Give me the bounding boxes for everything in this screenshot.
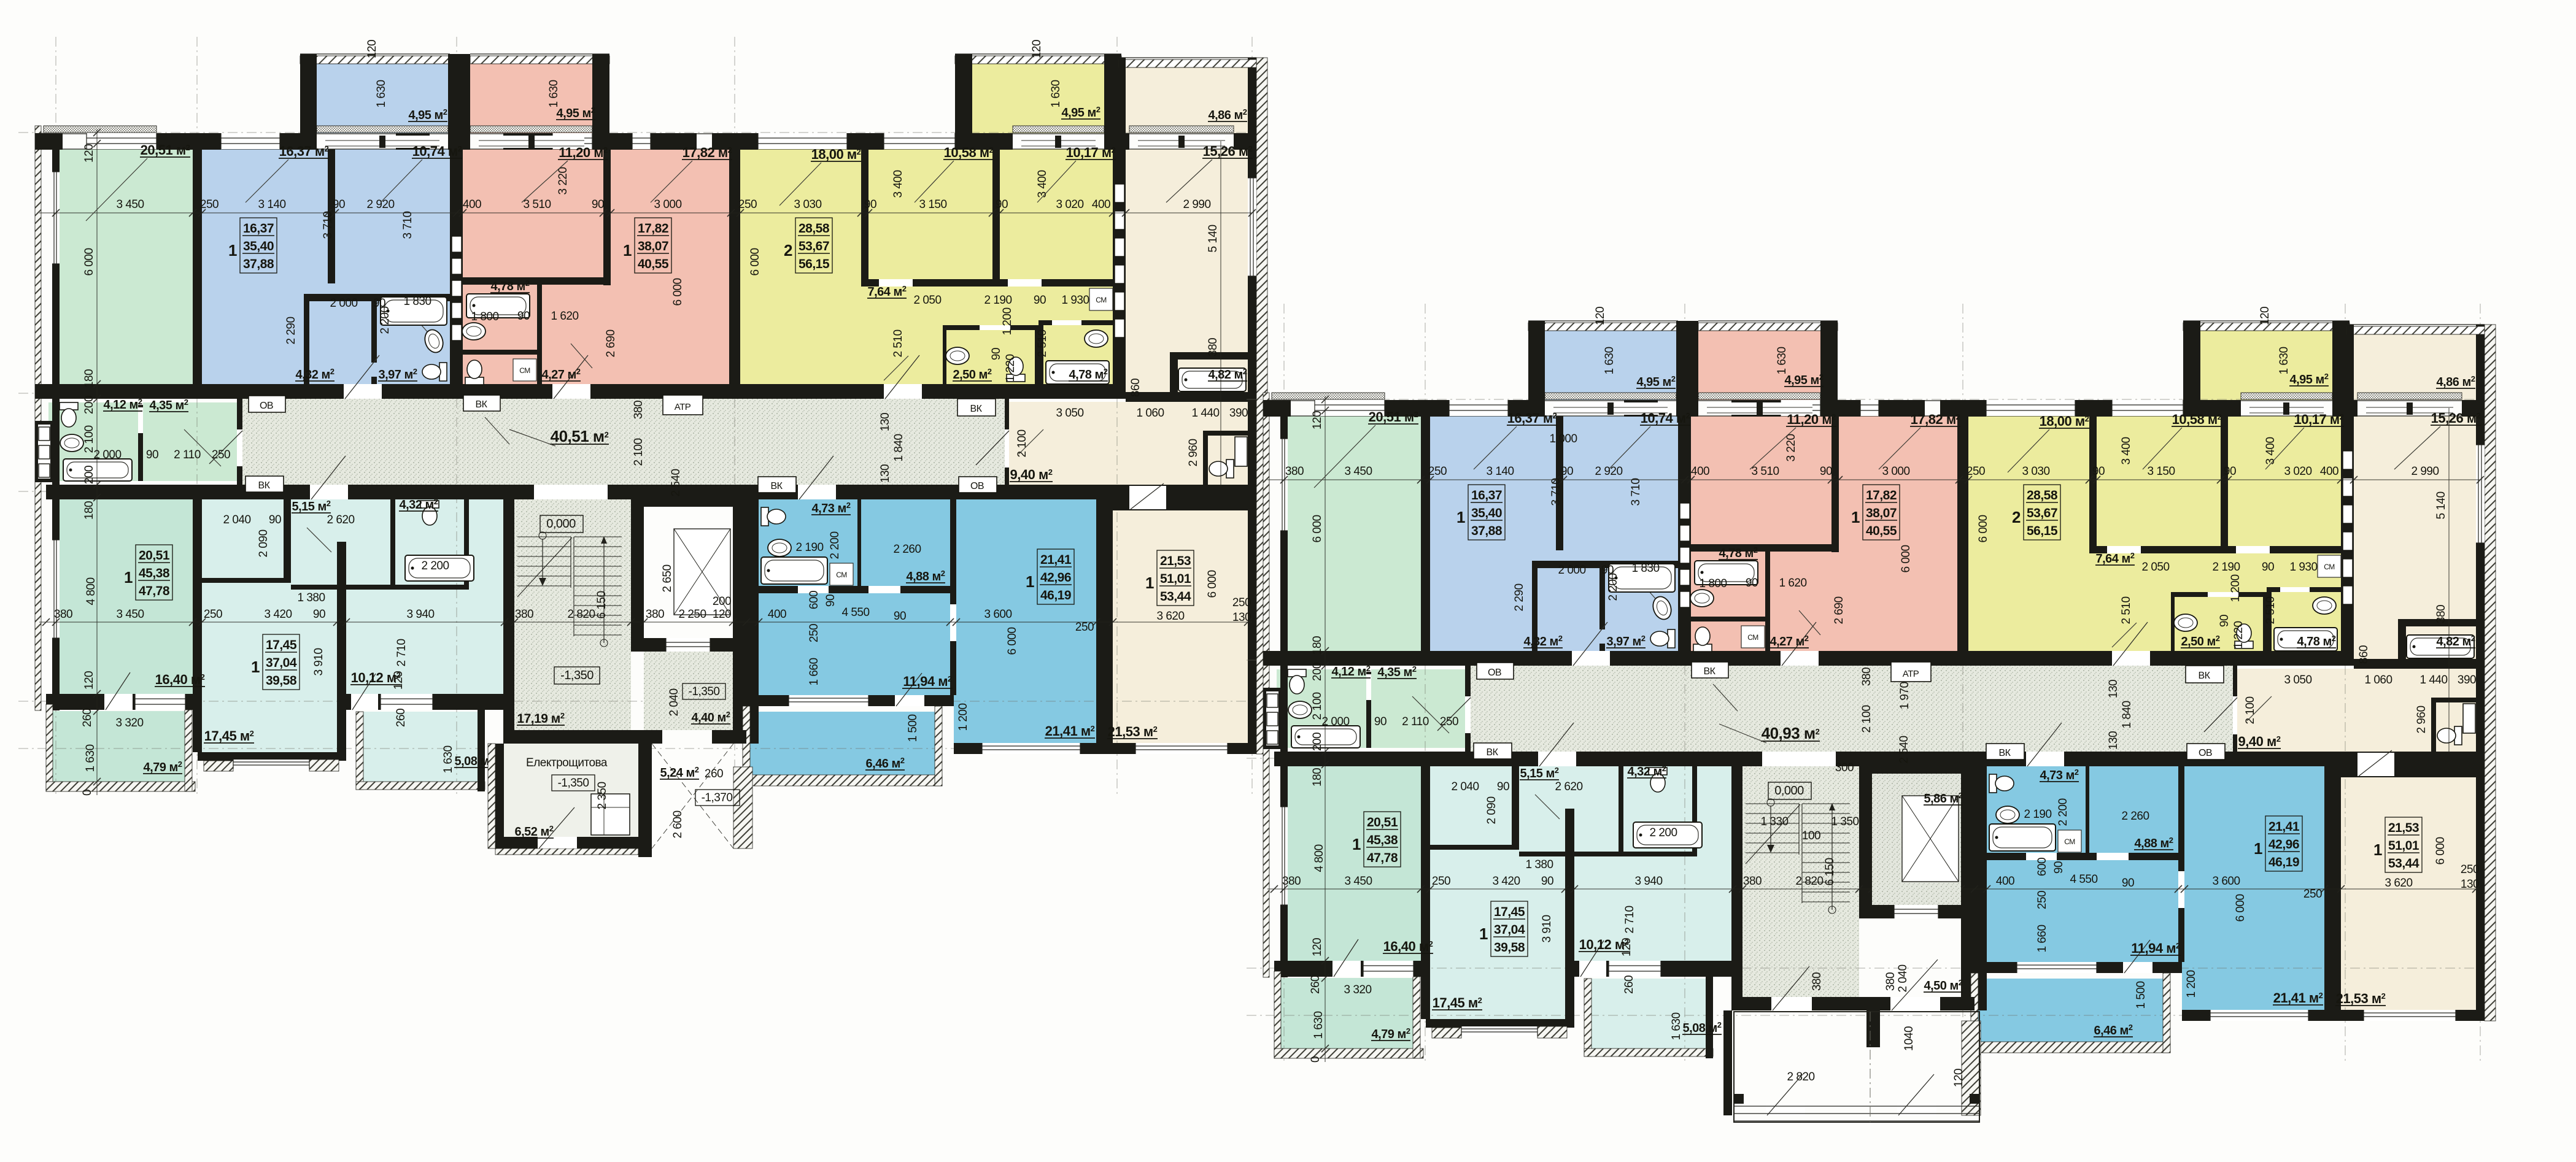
svg-text:3 450: 3 450 (116, 198, 144, 211)
svg-text:5,15 м2: 5,15 м2 (292, 499, 330, 514)
svg-text:3 000: 3 000 (1882, 465, 1909, 478)
svg-text:1 800: 1 800 (1699, 577, 1727, 590)
svg-text:1 060: 1 060 (1136, 407, 1164, 420)
svg-text:0,000: 0,000 (1774, 784, 1804, 798)
svg-text:40,55: 40,55 (638, 257, 669, 271)
svg-text:3 050: 3 050 (1056, 407, 1083, 420)
svg-text:1 840: 1 840 (892, 434, 905, 461)
svg-text:17,82 м2: 17,82 м2 (1911, 412, 1960, 427)
svg-text:2 100: 2 100 (1016, 429, 1029, 457)
svg-text:3 940: 3 940 (406, 608, 434, 621)
svg-text:3 710: 3 710 (322, 211, 335, 239)
svg-text:1 630: 1 630 (1670, 1012, 1683, 1040)
svg-text:2 260: 2 260 (2121, 810, 2149, 823)
svg-text:5 140: 5 140 (2435, 491, 2448, 519)
svg-text:ОВ: ОВ (1488, 668, 1501, 678)
svg-text:120: 120 (1311, 411, 1324, 429)
svg-text:3 510: 3 510 (523, 198, 551, 211)
svg-text:4,82 м2: 4,82 м2 (1208, 367, 1247, 382)
svg-text:4,95 м2: 4,95 м2 (1636, 374, 1675, 389)
svg-text:90: 90 (269, 514, 281, 526)
svg-text:ВК: ВК (2199, 671, 2211, 681)
svg-text:1 440: 1 440 (1191, 407, 1219, 420)
svg-text:3 050: 3 050 (2284, 674, 2311, 687)
svg-text:2 540: 2 540 (670, 469, 683, 496)
svg-text:1 830: 1 830 (1631, 562, 1659, 575)
svg-text:2 050: 2 050 (2141, 561, 2169, 574)
svg-text:2 040: 2 040 (1897, 964, 1909, 992)
svg-text:17,45: 17,45 (266, 638, 297, 652)
svg-text:3 140: 3 140 (258, 198, 285, 211)
svg-text:3 600: 3 600 (984, 608, 1011, 621)
svg-text:4,82 м2: 4,82 м2 (2436, 634, 2475, 648)
svg-text:2 090: 2 090 (1485, 796, 1498, 824)
svg-text:СМ: СМ (519, 366, 530, 375)
svg-text:2 040: 2 040 (223, 514, 250, 526)
svg-text:2 620: 2 620 (327, 514, 354, 526)
svg-text:90: 90 (2092, 465, 2105, 478)
svg-text:120: 120 (2259, 307, 2272, 325)
svg-text:250: 250 (1440, 715, 1458, 728)
svg-text:16,37 м2: 16,37 м2 (279, 144, 329, 159)
svg-text:6 000: 6 000 (1006, 627, 1019, 655)
svg-text:250: 250 (1428, 465, 1447, 478)
svg-text:130: 130 (2107, 680, 2120, 698)
svg-text:4,79 м2: 4,79 м2 (143, 760, 182, 774)
svg-text:1 200: 1 200 (2229, 574, 2242, 602)
svg-text:2 100: 2 100 (1311, 692, 1324, 720)
svg-text:7,64 м2: 7,64 м2 (2095, 551, 2134, 566)
svg-text:90: 90 (2122, 877, 2134, 890)
svg-text:2 820: 2 820 (567, 608, 595, 621)
svg-text:390: 390 (1229, 407, 1248, 420)
svg-text:380: 380 (1743, 875, 1762, 888)
svg-text:250: 250 (738, 198, 757, 211)
svg-text:38,07: 38,07 (638, 239, 668, 253)
svg-text:380: 380 (515, 608, 533, 621)
svg-text:400: 400 (1691, 465, 1709, 478)
svg-text:130: 130 (1232, 611, 1251, 624)
svg-text:5,08 м2: 5,08 м2 (454, 753, 493, 768)
svg-text:3 940: 3 940 (1634, 875, 1662, 888)
svg-text:1 660: 1 660 (808, 658, 821, 685)
svg-text:42,96: 42,96 (1040, 571, 1071, 585)
svg-text:2 260: 2 260 (893, 543, 921, 556)
svg-text:1 830: 1 830 (403, 295, 431, 308)
svg-text:37,04: 37,04 (1494, 923, 1525, 937)
svg-text:6 000: 6 000 (1311, 515, 1324, 542)
svg-text:21,53 м2: 21,53 м2 (2336, 991, 2386, 1006)
svg-text:5,24 м2: 5,24 м2 (660, 765, 698, 780)
svg-text:28,58: 28,58 (2027, 488, 2058, 502)
svg-text:10,74 м2: 10,74 м2 (412, 144, 462, 159)
svg-text:2 350: 2 350 (596, 782, 609, 809)
svg-text:11,20 м2: 11,20 м2 (559, 145, 608, 160)
svg-text:260: 260 (1623, 975, 1636, 994)
svg-text:120: 120 (1594, 307, 1607, 325)
svg-text:380: 380 (54, 608, 72, 621)
svg-text:3 710: 3 710 (1630, 478, 1642, 506)
svg-text:39,58: 39,58 (266, 674, 297, 688)
svg-text:1: 1 (1145, 574, 1154, 592)
svg-text:10,17 м2: 10,17 м2 (1066, 145, 1116, 160)
svg-text:120: 120 (1952, 1069, 1965, 1087)
svg-text:2 290: 2 290 (1513, 583, 1526, 611)
svg-text:400: 400 (768, 608, 786, 621)
svg-text:1 630: 1 630 (1312, 1011, 1325, 1039)
svg-text:380: 380 (1860, 668, 1873, 686)
svg-text:6,46 м2: 6,46 м2 (2094, 1023, 2132, 1037)
svg-text:35,40: 35,40 (1471, 506, 1502, 520)
svg-text:1 000: 1 000 (1549, 433, 1577, 445)
svg-text:3 620: 3 620 (2385, 877, 2412, 890)
svg-text:4,95 м2: 4,95 м2 (1061, 105, 1100, 120)
svg-text:2 110: 2 110 (174, 448, 201, 461)
svg-text:17,82 м2: 17,82 м2 (683, 145, 732, 160)
svg-text:1 660: 1 660 (2036, 925, 2049, 952)
svg-text:3 710: 3 710 (1550, 478, 1563, 506)
svg-text:600: 600 (2036, 858, 2049, 876)
svg-text:90: 90 (333, 198, 345, 211)
svg-text:5,86 м2: 5,86 м2 (1924, 791, 1962, 806)
svg-text:2 540: 2 540 (1898, 736, 1911, 763)
svg-text:2 190: 2 190 (795, 541, 823, 554)
svg-text:200: 200 (1311, 663, 1324, 681)
svg-text:4,27 м2: 4,27 м2 (1770, 634, 1808, 648)
svg-text:3 150: 3 150 (2147, 465, 2175, 478)
svg-text:45,38: 45,38 (1367, 833, 1398, 847)
svg-text:17,45 м2: 17,45 м2 (204, 728, 254, 744)
svg-text:2 710: 2 710 (395, 639, 408, 666)
svg-text:28,58: 28,58 (799, 221, 830, 236)
svg-text:3 910: 3 910 (1541, 915, 1553, 942)
svg-text:120: 120 (83, 144, 96, 163)
svg-text:3 320: 3 320 (1344, 983, 1371, 996)
svg-text:860: 860 (1129, 379, 1142, 397)
svg-text:16,37: 16,37 (243, 221, 274, 236)
svg-text:1 930: 1 930 (1061, 294, 1089, 307)
svg-text:6 000: 6 000 (2234, 894, 2247, 922)
svg-text:3 000: 3 000 (654, 198, 681, 211)
svg-text:2 510: 2 510 (892, 329, 905, 357)
svg-text:1: 1 (251, 658, 260, 676)
svg-text:380: 380 (1207, 338, 1220, 356)
svg-text:6 000: 6 000 (1900, 545, 1913, 572)
svg-text:-1,350: -1,350 (558, 777, 589, 790)
svg-text:1: 1 (2254, 839, 2262, 858)
svg-text:120: 120 (366, 40, 379, 58)
svg-text:2 000: 2 000 (330, 297, 357, 310)
svg-text:4,32 м2: 4,32 м2 (1523, 634, 1562, 648)
svg-text:1: 1 (228, 241, 237, 260)
svg-text:2 690: 2 690 (605, 329, 617, 357)
svg-text:ВК: ВК (771, 481, 783, 491)
svg-text:4,95 м2: 4,95 м2 (2289, 372, 2328, 387)
svg-text:40,55: 40,55 (1866, 524, 1897, 538)
svg-text:2 190: 2 190 (2212, 561, 2240, 574)
svg-text:90: 90 (1497, 780, 1509, 793)
svg-text:90: 90 (592, 198, 604, 211)
svg-text:1 630: 1 630 (1050, 80, 1062, 107)
svg-text:260: 260 (705, 768, 723, 780)
svg-text:2 650: 2 650 (661, 564, 674, 592)
svg-text:2 090: 2 090 (257, 529, 270, 557)
svg-text:ВК: ВК (1999, 748, 2011, 758)
svg-text:2 200: 2 200 (421, 560, 449, 572)
svg-text:90: 90 (2218, 615, 2231, 627)
svg-text:42,96: 42,96 (2269, 837, 2299, 852)
svg-text:1 630: 1 630 (1603, 347, 1616, 374)
svg-text:2 990: 2 990 (1183, 198, 1210, 211)
svg-text:3 450: 3 450 (116, 608, 144, 621)
svg-text:10,74 м2: 10,74 м2 (1641, 410, 1690, 426)
svg-text:380: 380 (1282, 875, 1301, 888)
svg-text:4,88 м2: 4,88 м2 (2134, 836, 2173, 850)
svg-text:4,95 м2: 4,95 м2 (556, 106, 595, 120)
svg-text:47,78: 47,78 (1367, 851, 1398, 865)
svg-text:0: 0 (1309, 1056, 1322, 1063)
svg-text:6 000: 6 000 (749, 248, 762, 275)
svg-text:16,40 м2: 16,40 м2 (155, 672, 205, 687)
svg-text:2 000: 2 000 (1321, 715, 1349, 728)
svg-text:400: 400 (1092, 198, 1110, 211)
svg-text:180: 180 (83, 369, 96, 388)
svg-text:250: 250 (808, 624, 821, 642)
svg-text:1: 1 (124, 568, 133, 587)
svg-text:53,44: 53,44 (2388, 856, 2419, 871)
svg-text:3 420: 3 420 (264, 608, 292, 621)
svg-text:ВК: ВК (970, 404, 983, 414)
svg-text:16,40 м2: 16,40 м2 (1383, 939, 1433, 954)
svg-text:90: 90 (1034, 294, 1046, 307)
svg-text:3 030: 3 030 (2022, 465, 2049, 478)
svg-text:ОВ: ОВ (260, 401, 273, 411)
svg-text:4,86 м2: 4,86 м2 (2436, 374, 2475, 389)
svg-text:2 920: 2 920 (366, 198, 394, 211)
svg-text:2 100: 2 100 (2244, 696, 2257, 724)
svg-text:200: 200 (1311, 733, 1324, 751)
svg-text:53,67: 53,67 (2027, 506, 2057, 520)
svg-text:15,26 м2: 15,26 м2 (1203, 144, 1253, 159)
svg-text:380: 380 (1811, 972, 1824, 991)
svg-text:40,93 м2: 40,93 м2 (1762, 724, 1820, 742)
svg-text:4,78 м2: 4,78 м2 (1719, 545, 1757, 560)
svg-text:2 110: 2 110 (1402, 715, 1429, 728)
svg-text:21,53: 21,53 (2388, 821, 2419, 835)
svg-text:1: 1 (1479, 925, 1488, 943)
svg-text:3 220: 3 220 (1785, 434, 1798, 461)
svg-text:3 030: 3 030 (794, 198, 821, 211)
svg-text:6 000: 6 000 (2434, 837, 2447, 864)
svg-text:16,37 м2: 16,37 м2 (1507, 410, 1557, 426)
svg-text:4,95 м2: 4,95 м2 (1784, 372, 1823, 387)
svg-text:2 000: 2 000 (93, 448, 121, 461)
svg-text:250: 250 (1075, 621, 1094, 634)
svg-text:6 000: 6 000 (671, 278, 684, 306)
svg-text:600: 600 (808, 591, 821, 609)
svg-text:250: 250 (2461, 863, 2479, 876)
svg-text:2 100: 2 100 (83, 425, 96, 453)
svg-text:38,07: 38,07 (1866, 506, 1897, 520)
svg-text:2 960: 2 960 (2415, 706, 2428, 733)
svg-text:400: 400 (1996, 875, 2014, 888)
svg-text:-1,350: -1,350 (689, 685, 720, 698)
svg-text:21,41: 21,41 (1040, 553, 1072, 567)
svg-text:1 840: 1 840 (2121, 701, 2133, 728)
svg-text:1: 1 (623, 241, 632, 260)
svg-text:260: 260 (1309, 975, 1322, 994)
svg-text:1 220: 1 220 (1004, 354, 1017, 382)
svg-text:51,01: 51,01 (2388, 839, 2419, 853)
svg-text:1 630: 1 630 (84, 744, 97, 772)
svg-text:10,12 м2: 10,12 м2 (1579, 937, 1629, 952)
svg-text:90: 90 (990, 348, 1003, 360)
svg-text:4 550: 4 550 (2070, 873, 2097, 886)
svg-text:2,50 м2: 2,50 м2 (953, 367, 991, 382)
svg-text:3 140: 3 140 (1486, 465, 1514, 478)
svg-text:1 200: 1 200 (957, 703, 970, 731)
svg-text:1: 1 (1456, 508, 1465, 526)
svg-text:180: 180 (1311, 768, 1324, 787)
svg-text:4,12 м2: 4,12 м2 (103, 397, 142, 412)
svg-text:130: 130 (2461, 878, 2479, 891)
svg-text:20,51 м2: 20,51 м2 (1369, 409, 1418, 425)
svg-text:1 200: 1 200 (2185, 970, 2198, 998)
svg-text:90: 90 (824, 594, 837, 607)
svg-text:18,00 м2: 18,00 м2 (811, 147, 861, 162)
svg-text:260: 260 (81, 709, 94, 727)
svg-text:1 220: 1 220 (2232, 621, 2245, 648)
svg-text:1: 1 (1851, 508, 1860, 526)
svg-text:180: 180 (83, 501, 96, 520)
svg-text:4,35 м2: 4,35 м2 (149, 398, 188, 412)
svg-text:380: 380 (632, 401, 645, 419)
svg-text:6 150: 6 150 (595, 591, 608, 618)
svg-text:1 630: 1 630 (2278, 347, 2291, 374)
svg-text:6 000: 6 000 (83, 248, 96, 275)
svg-text:2 200: 2 200 (829, 531, 841, 559)
svg-text:180: 180 (1311, 636, 1324, 655)
svg-text:37,04: 37,04 (266, 656, 297, 670)
svg-text:300: 300 (1835, 761, 1854, 774)
svg-text:37,88: 37,88 (1471, 524, 1503, 538)
svg-text:17,45: 17,45 (1494, 905, 1525, 919)
svg-text:2 690: 2 690 (1833, 596, 1846, 624)
svg-text:СМ: СМ (1747, 633, 1758, 642)
svg-text:3 020: 3 020 (2284, 465, 2311, 478)
svg-text:4,78 м2: 4,78 м2 (2297, 634, 2335, 648)
svg-text:2 040: 2 040 (668, 688, 681, 716)
svg-text:4,88 м2: 4,88 м2 (906, 569, 945, 583)
svg-text:1 500: 1 500 (907, 714, 919, 742)
svg-text:45,38: 45,38 (139, 566, 170, 580)
svg-text:5,08 м2: 5,08 м2 (1682, 1020, 1721, 1035)
svg-text:3 450: 3 450 (1344, 465, 1372, 478)
svg-text:6,46 м2: 6,46 м2 (865, 756, 904, 771)
svg-text:120: 120 (1311, 938, 1324, 956)
svg-text:2 200: 2 200 (1649, 826, 1677, 839)
svg-text:2 200: 2 200 (379, 306, 392, 334)
svg-text:200: 200 (83, 396, 96, 414)
svg-text:-1,350: -1,350 (560, 669, 594, 682)
svg-text:2 200: 2 200 (2057, 798, 2070, 826)
svg-text:21,41 м2: 21,41 м2 (1045, 723, 1095, 739)
svg-text:3 400: 3 400 (2120, 437, 2133, 464)
svg-text:4 550: 4 550 (841, 606, 869, 619)
svg-text:2 250: 2 250 (678, 608, 706, 621)
svg-text:0,000: 0,000 (546, 517, 576, 531)
svg-text:21,41 м2: 21,41 м2 (2273, 990, 2323, 1006)
svg-text:1 200: 1 200 (1001, 307, 1014, 335)
svg-text:4,32 м2: 4,32 м2 (1627, 764, 1666, 779)
svg-text:1 500: 1 500 (2135, 981, 2148, 1009)
svg-text:1: 1 (2373, 841, 2382, 859)
svg-text:860: 860 (2357, 645, 2370, 664)
svg-text:15,26 м2: 15,26 м2 (2431, 410, 2481, 426)
svg-text:53,67: 53,67 (799, 239, 829, 253)
svg-text:2 510: 2 510 (2264, 596, 2277, 624)
svg-text:250: 250 (1232, 596, 1251, 609)
svg-text:11,94 м2: 11,94 м2 (2131, 941, 2180, 956)
svg-text:2 190: 2 190 (984, 294, 1011, 307)
svg-text:ОВ: ОВ (970, 481, 984, 491)
svg-text:3 600: 3 600 (2212, 875, 2240, 888)
svg-text:3 510: 3 510 (1751, 465, 1779, 478)
svg-text:1 630: 1 630 (547, 80, 560, 107)
svg-text:4,27 м2: 4,27 м2 (541, 367, 580, 382)
svg-text:4,50 м2: 4,50 м2 (1924, 978, 1962, 993)
svg-text:1 630: 1 630 (1776, 347, 1789, 374)
svg-text:3 710: 3 710 (401, 211, 414, 239)
svg-text:2 600: 2 600 (671, 810, 684, 838)
svg-text:2 920: 2 920 (1595, 465, 1622, 478)
svg-text:250: 250 (1432, 875, 1450, 888)
svg-text:390: 390 (2458, 674, 2476, 687)
svg-text:120: 120 (713, 608, 731, 621)
svg-text:53,44: 53,44 (1160, 590, 1191, 604)
svg-text:56,15: 56,15 (799, 257, 830, 271)
svg-text:250: 250 (204, 608, 222, 621)
svg-text:2 290: 2 290 (285, 317, 298, 344)
svg-text:200: 200 (83, 466, 96, 484)
svg-text:1 630: 1 630 (442, 745, 455, 773)
svg-text:ВК: ВК (476, 399, 488, 410)
svg-text:2 050: 2 050 (913, 294, 941, 307)
svg-text:130: 130 (2107, 731, 2120, 750)
svg-text:4,12 м2: 4,12 м2 (1331, 664, 1370, 679)
svg-text:4,32 м2: 4,32 м2 (295, 367, 334, 382)
svg-text:2 510: 2 510 (2120, 596, 2133, 624)
svg-text:7,64 м2: 7,64 м2 (867, 284, 906, 299)
svg-text:2 100: 2 100 (632, 438, 645, 466)
svg-text:400: 400 (463, 198, 481, 211)
svg-text:АТР: АТР (675, 402, 691, 412)
svg-text:250: 250 (200, 198, 219, 211)
svg-text:2 990: 2 990 (2411, 465, 2439, 478)
svg-text:400: 400 (2320, 465, 2338, 478)
svg-text:1: 1 (1352, 835, 1361, 853)
svg-text:6 000: 6 000 (1206, 570, 1219, 598)
svg-text:4,86 м2: 4,86 м2 (1208, 107, 1247, 122)
svg-text:90: 90 (864, 198, 876, 211)
svg-text:1 380: 1 380 (297, 591, 325, 604)
svg-text:1: 1 (1026, 572, 1034, 591)
svg-text:46,19: 46,19 (2269, 855, 2299, 869)
svg-text:2 620: 2 620 (1555, 780, 1582, 793)
svg-text:2: 2 (2012, 508, 2021, 526)
svg-text:130: 130 (879, 464, 892, 483)
svg-text:4,73 м2: 4,73 м2 (811, 501, 850, 515)
